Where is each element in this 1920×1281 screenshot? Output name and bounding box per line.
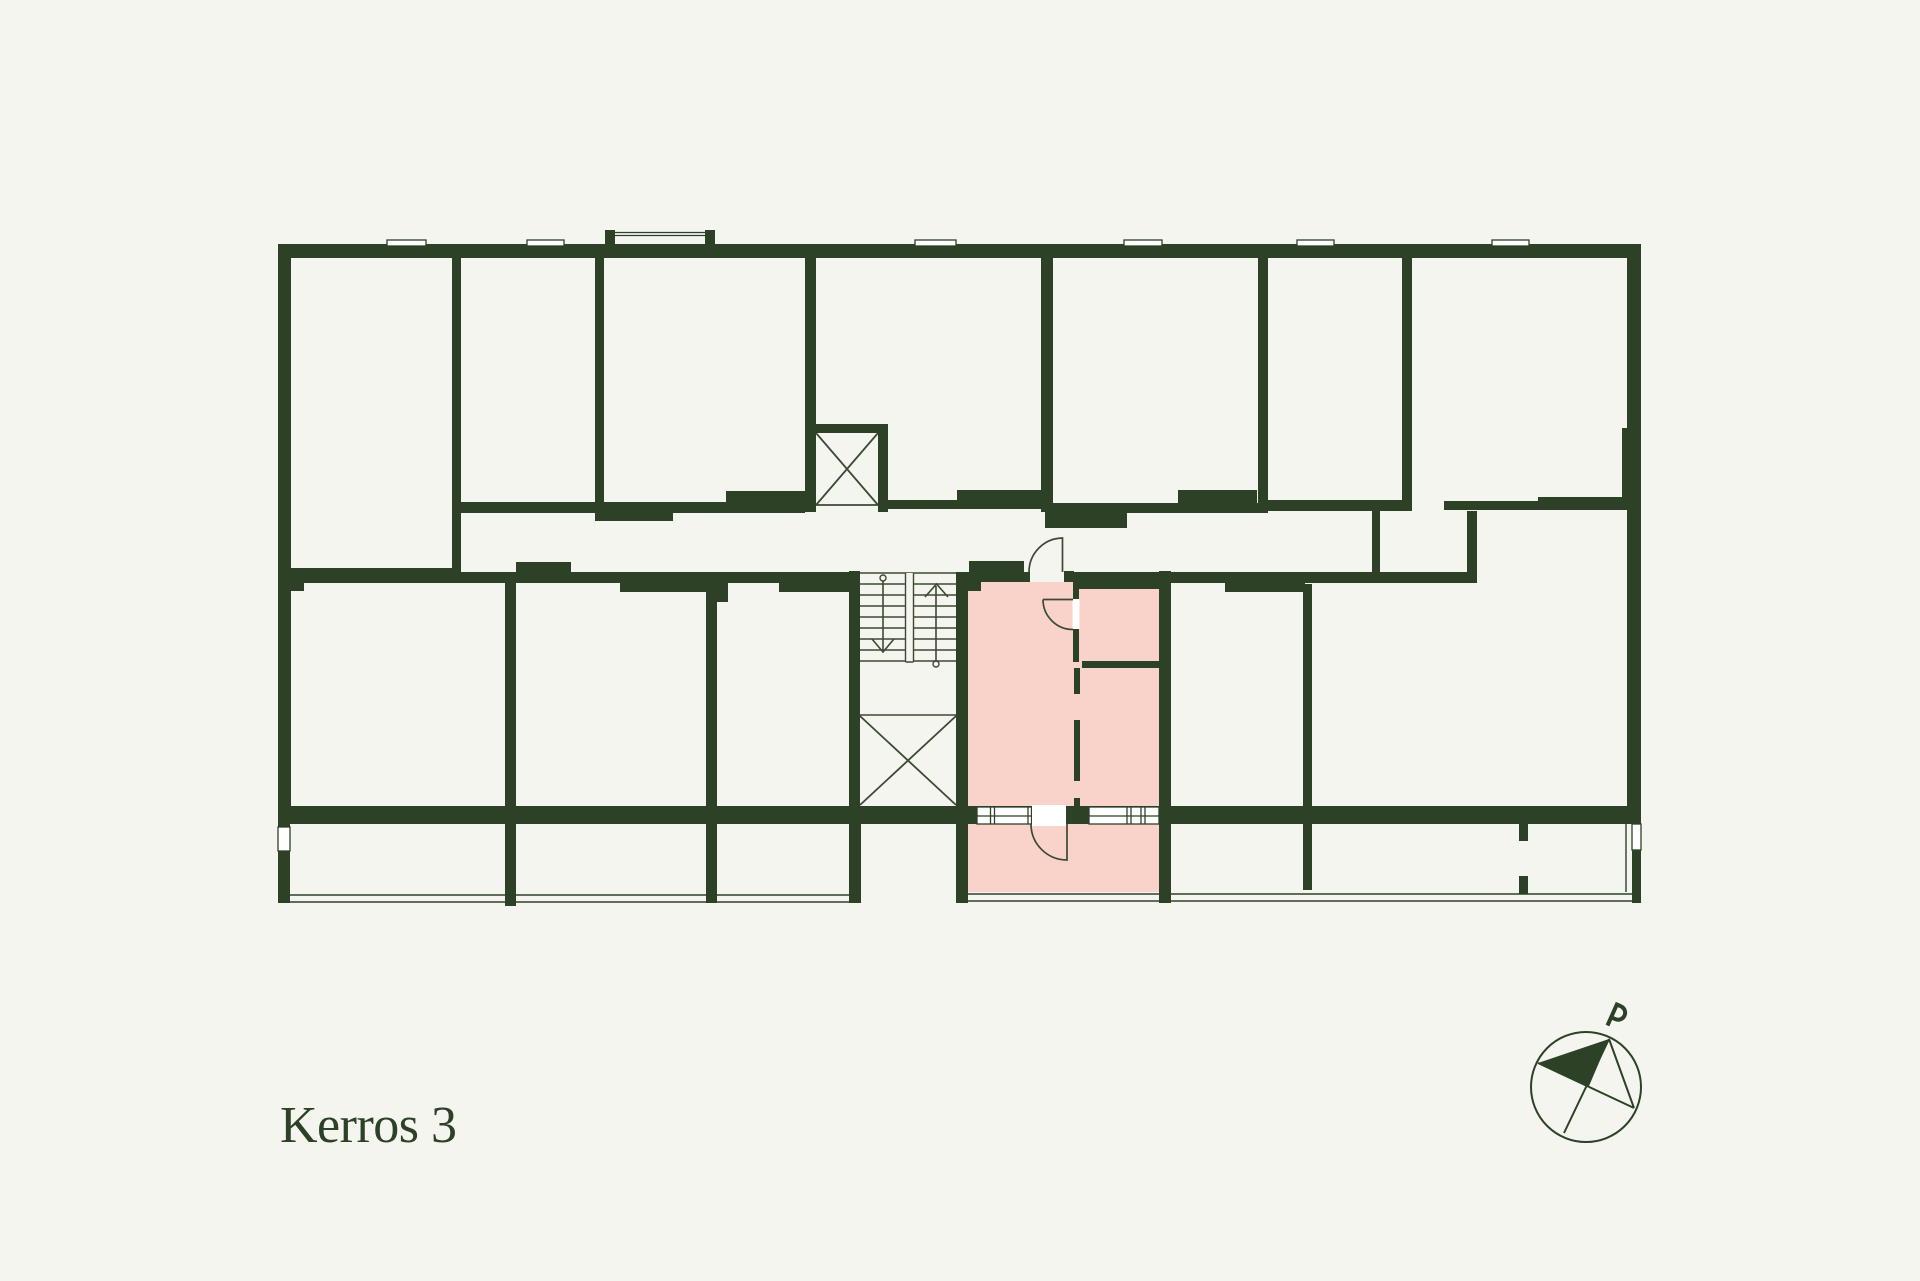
svg-text:Kerros 3: Kerros 3 — [280, 1097, 457, 1154]
